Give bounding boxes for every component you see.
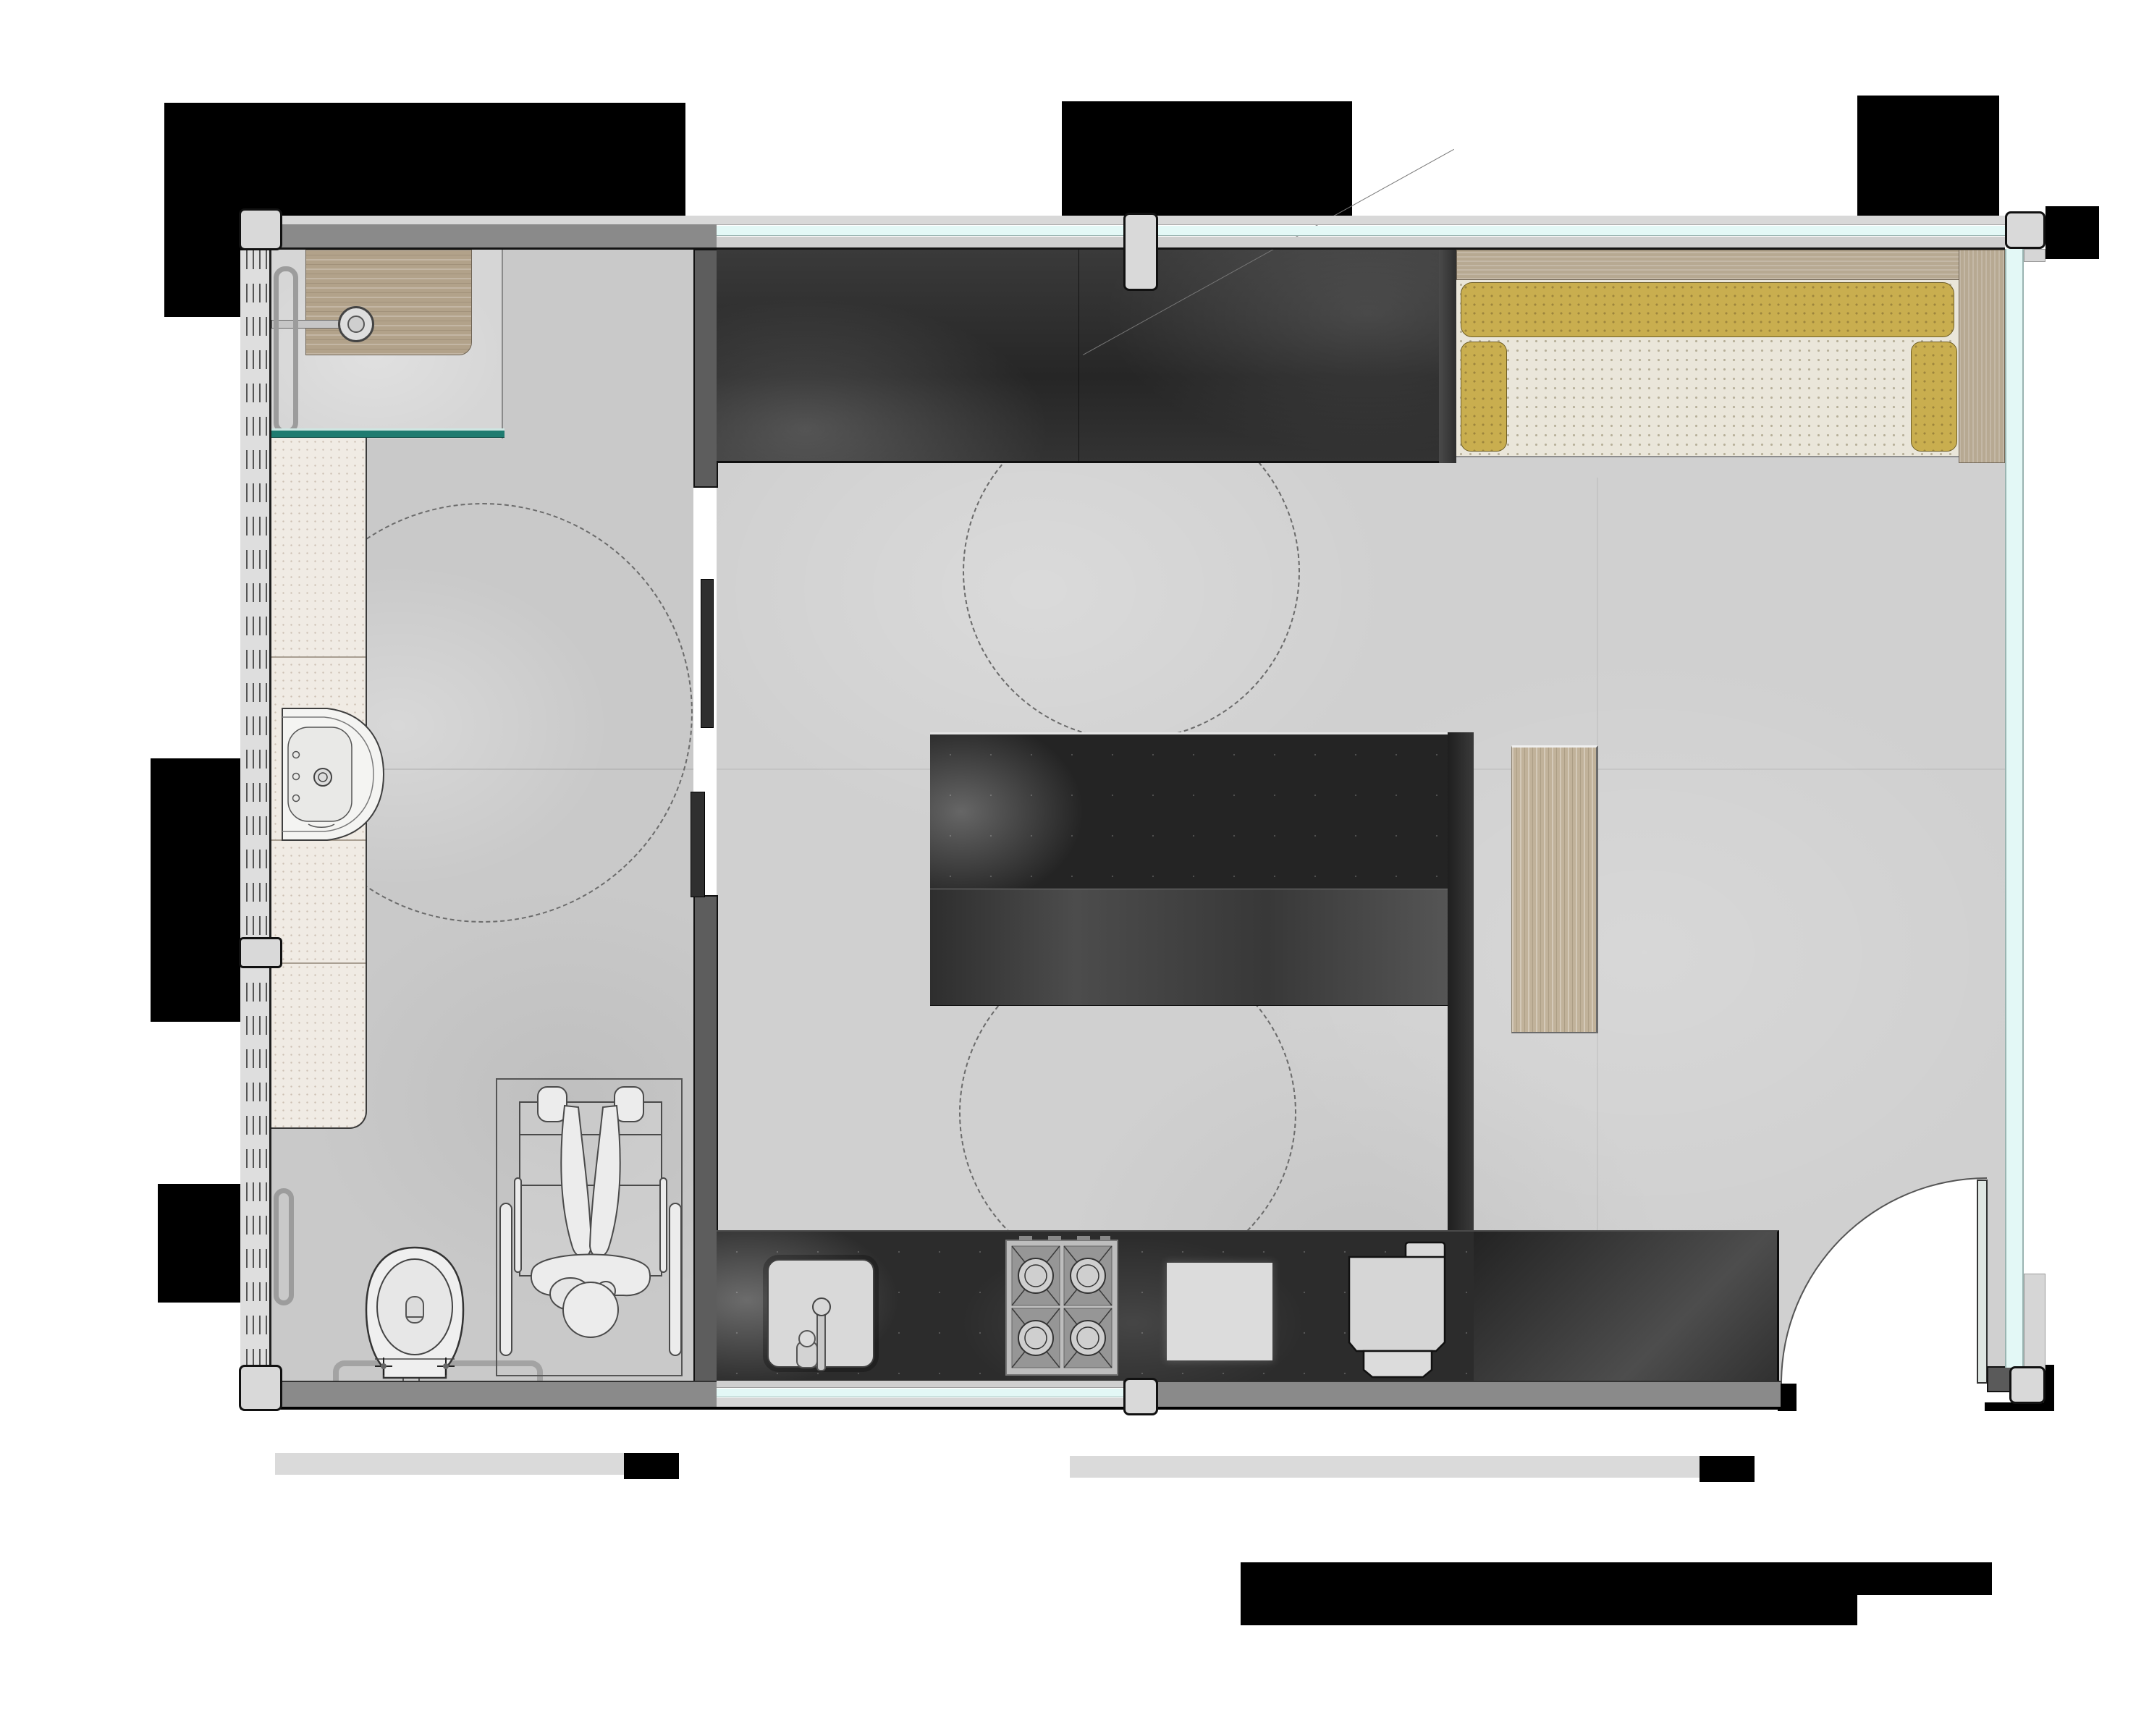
wall-bottom-solid [1158, 1381, 1781, 1410]
door-threshold [1987, 1366, 2012, 1392]
wardrobe [717, 250, 1456, 463]
sofa-frame-right [1959, 250, 2005, 463]
shadow-top-middle [1062, 101, 1352, 217]
tall-cabinet [1474, 1230, 1779, 1384]
sliding-door-leaf [701, 579, 714, 728]
wood-desk-panel [1511, 745, 1598, 1033]
shadow-bottom-bar-right [1857, 1562, 1992, 1595]
window-glass-band [717, 1389, 1123, 1397]
kitchen-island-top [930, 732, 1448, 889]
wall-bottom-kitchen-window [717, 1381, 1123, 1410]
siding-band [717, 1398, 1123, 1407]
dishwasher [1339, 1241, 1449, 1379]
siding-piece-top-right [2024, 249, 2045, 262]
partition-wall-upper [693, 249, 718, 488]
shower-glass-screen [271, 428, 504, 438]
sofa-frame-top [1456, 250, 2005, 280]
sofa-back-cushion [1461, 282, 1954, 337]
corner-post-bottom-left [239, 1365, 282, 1411]
shower-head-inner [347, 316, 365, 333]
wall-right-glazed [2005, 249, 2024, 1368]
shadow-left-lower [158, 1184, 240, 1303]
wall-left-slatted [240, 250, 271, 1381]
grab-bar-shower [274, 266, 298, 434]
corner-post-top-left [239, 208, 282, 250]
slat-line [246, 250, 248, 1381]
base-skirt-left [275, 1453, 624, 1475]
wheelchair-user [496, 1077, 685, 1379]
mullion-post-bottom [1123, 1378, 1158, 1415]
siding-piece-bottom-right [2024, 1274, 2045, 1371]
sofa-armrest-left [1461, 342, 1507, 452]
shadow-bottom-bar [1241, 1562, 1857, 1625]
shadow-skirt-right-end [1700, 1456, 1755, 1482]
kitchen-faucet-icon [793, 1295, 843, 1379]
corner-post-bottom-right [2009, 1366, 2045, 1404]
partition-wall-lower [693, 895, 718, 1384]
wardrobe-divider [1078, 250, 1079, 463]
window-glass-band [717, 226, 2005, 236]
window-sill-band [717, 237, 2005, 247]
cooktop [1005, 1236, 1119, 1378]
base-skirt-right [1070, 1456, 1700, 1478]
window-sill-band [717, 1381, 1123, 1388]
grab-bar-wall [274, 1188, 294, 1305]
shadow-right-of-post [2045, 206, 2099, 259]
chopping-board [1167, 1263, 1272, 1360]
slat-line [259, 250, 261, 1381]
wall-band [240, 224, 717, 247]
slat-line [266, 250, 267, 1381]
tile-joint [271, 962, 366, 964]
sofa-armrest-right [1911, 342, 1957, 452]
mullion-post-top [1123, 213, 1158, 291]
wall-bottom-bathroom [240, 1381, 717, 1410]
sofa-end-panel [1439, 250, 1456, 463]
shadow-skirt-left-end [624, 1453, 679, 1479]
slat-line [253, 250, 254, 1381]
siding-band [240, 216, 717, 224]
shadow-top-left [164, 103, 685, 221]
floor-plan-canvas [0, 0, 2149, 1736]
corner-post-top-right [2005, 211, 2045, 249]
post-left-middle [239, 937, 282, 968]
tile-joint [271, 656, 366, 658]
wall-top-window [717, 216, 2005, 250]
shadow-left-upper [151, 758, 240, 1022]
wall-top-solid [240, 216, 717, 250]
kitchen-island-front [930, 889, 1448, 1006]
sliding-door-leaf [691, 792, 705, 897]
shower-bench [305, 250, 472, 355]
shadow-top-right [1857, 96, 1999, 219]
hand-basin [276, 706, 389, 843]
toilet [360, 1243, 469, 1385]
entry-door-leaf [1977, 1180, 1988, 1384]
siding-band [717, 216, 2005, 225]
